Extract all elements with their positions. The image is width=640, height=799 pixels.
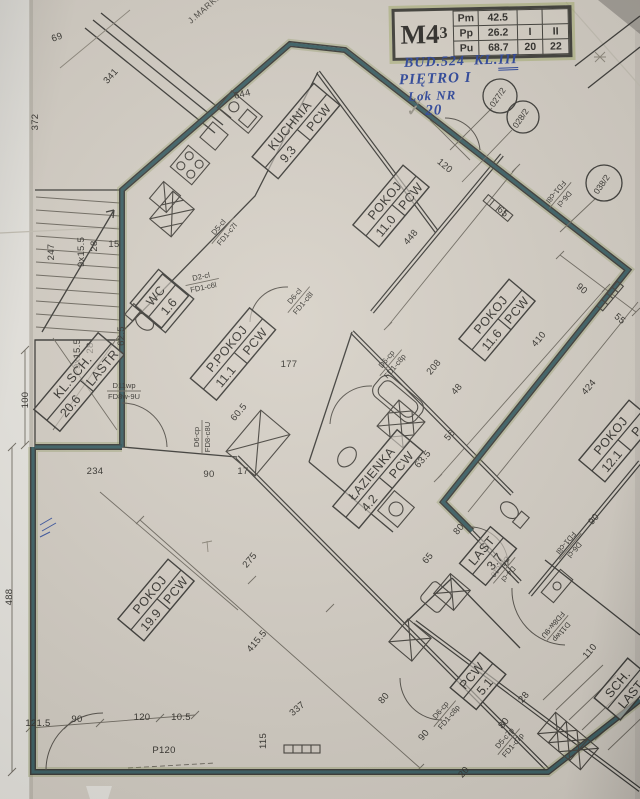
dimension-label: 90 <box>71 714 82 725</box>
svg-text:FD8-c8U: FD8-c8U <box>203 422 212 452</box>
dimension-label: 28 <box>516 690 532 706</box>
door-label: D2-clFD1-c6l <box>184 269 221 296</box>
dimension-label: 90 <box>416 728 432 744</box>
washbasin-icon <box>334 443 360 470</box>
dimension-label: 410 <box>529 329 548 349</box>
dimension-label: 121.5 <box>25 718 50 729</box>
room-label-kuchnia: KUCHNIA9.3PCW <box>252 83 340 178</box>
svg-text:028/2: 028/2 <box>510 106 531 130</box>
dimension-label: 17 <box>237 466 248 477</box>
title-table-cell: 42.5 <box>478 10 517 26</box>
door-label: D11wpFD8w-9U <box>539 609 576 648</box>
door-label: D11wpFD8w-9U <box>107 381 141 401</box>
dimension-label: 424 <box>579 377 598 397</box>
svg-text:D6-cp: D6-cp <box>192 427 201 447</box>
svg-text:027/2: 027/2 <box>487 85 508 109</box>
svg-text:FD8w-9U: FD8w-9U <box>108 392 140 401</box>
dimension-label: 110 <box>581 642 600 661</box>
dimension-label: 65 <box>495 204 511 220</box>
unit-designation: M43 <box>395 11 454 58</box>
vent-shaft-icon <box>150 191 195 237</box>
dimension-label: 20 <box>456 765 472 781</box>
door-label: D6-cpFD8-c8U <box>192 420 212 454</box>
note-building: BUD.524 KL.III <box>404 52 518 72</box>
floor-plan-svg: J.MARKI GŁĘBOCKU 37269341644120659055448… <box>0 0 640 799</box>
dimension-label: 69 <box>50 31 64 45</box>
door-labels-layer: D5-clFD1-c7lD2-clFD1-c6lD6-clFD1-c8lD6-c… <box>107 176 589 761</box>
title-table-cell <box>542 9 568 25</box>
counter-icon <box>200 122 228 150</box>
door-label: D6-clFD1-c8l <box>280 280 317 319</box>
title-table-cell: II <box>543 24 569 40</box>
dimension-label: 28 <box>89 240 100 251</box>
dimension-label: 48 <box>449 382 465 398</box>
svg-text:038/2: 038/2 <box>591 172 612 196</box>
door-label: D5-c7pFD1-c7p <box>490 722 527 761</box>
note-lok-number: ✓ 20 <box>407 100 443 120</box>
radiator-icon <box>284 745 320 753</box>
stove-icon <box>170 145 209 184</box>
room-label-pokoj: POKOJ11.6PCW <box>459 279 535 361</box>
dimension-label: 415.5 <box>245 628 270 654</box>
fridge-icon <box>150 182 181 213</box>
dimension-label: 62.5 <box>116 326 127 346</box>
dimension-label: 56 <box>442 428 458 444</box>
room-label-ppokoj: P.POKOJ11.1PCW <box>190 308 275 400</box>
plot-reference-circle: 038/2 <box>586 165 622 201</box>
title-table-cell <box>517 9 543 25</box>
dimension-label: 100 <box>20 392 31 409</box>
plot-reference-circle: 028/2 <box>507 101 539 133</box>
street-label-layer: J.MARKI GŁĘBOCKU <box>186 0 263 26</box>
dimension-label: 275 <box>240 550 259 570</box>
door-label: D5-clFD1-c7l <box>204 211 241 250</box>
note-floor: PIĘTRO I <box>399 70 472 90</box>
title-table-cell: Pm <box>453 11 479 27</box>
room-label-wc: WC1.6 <box>135 274 188 328</box>
dimension-label: 15 <box>108 239 119 250</box>
dimension-label: 488 <box>4 589 15 606</box>
title-table-cell: 26.2 <box>479 25 518 41</box>
title-table-cell: I <box>517 24 543 40</box>
toilet-icon <box>497 498 529 528</box>
dimension-label: 120 <box>435 156 455 175</box>
svg-text:D11wp: D11wp <box>112 381 135 390</box>
room-label-pokoj: POKOJ19.9PCW <box>118 559 194 641</box>
dimension-label: 115 <box>258 733 269 749</box>
dimension-label: 80 <box>376 691 392 707</box>
title-table-cell: 20 <box>517 39 543 55</box>
dimension-label: 208 <box>424 357 443 377</box>
dimension-labels-layer: 37269341644120659055448410424208489x15.5… <box>4 31 627 781</box>
title-table-cell: 22 <box>543 39 569 55</box>
room-label-pcw: PCW5.1 <box>450 652 506 709</box>
dimension-label: 9x15.5 <box>76 237 87 267</box>
dimension-label: 10.5 <box>171 712 191 723</box>
dimension-label: 234 <box>87 466 104 477</box>
area-table: Pm42.5Pp26.2IIIPu68.72022 <box>453 8 570 56</box>
dimension-label: 60.5 <box>229 401 250 423</box>
plot-reference-circle: 027/2 <box>483 79 517 113</box>
dimension-label: 90 <box>203 469 214 480</box>
dimension-label: 90 <box>574 281 590 297</box>
street-label: J.MARKI GŁĘBOCKU <box>186 0 263 26</box>
dimension-label: 55 <box>612 311 628 327</box>
dimension-label: 65 <box>420 551 436 567</box>
dimension-label: P120 <box>152 745 175 756</box>
door-label: D6-cpFD1-c8p <box>426 694 463 733</box>
dimension-label: 448 <box>401 227 420 247</box>
dimension-label: 120 <box>134 712 151 723</box>
dimension-label: 337 <box>287 699 307 718</box>
dimension-label: 177 <box>281 359 298 370</box>
scanned-floor-plan-photo: J.MARKI GŁĘBOCKU 37269341644120659055448… <box>0 0 640 799</box>
door-label: D6-cpFD1-c8p <box>372 343 409 382</box>
title-table-cell: Pp <box>453 26 479 42</box>
outer-walls <box>33 44 640 772</box>
dimension-label: 372 <box>30 114 41 131</box>
dimension-label: 341 <box>101 66 120 86</box>
shower-icon <box>419 580 453 614</box>
shaft-icon <box>389 619 431 661</box>
dimension-label: 247 <box>46 244 57 261</box>
